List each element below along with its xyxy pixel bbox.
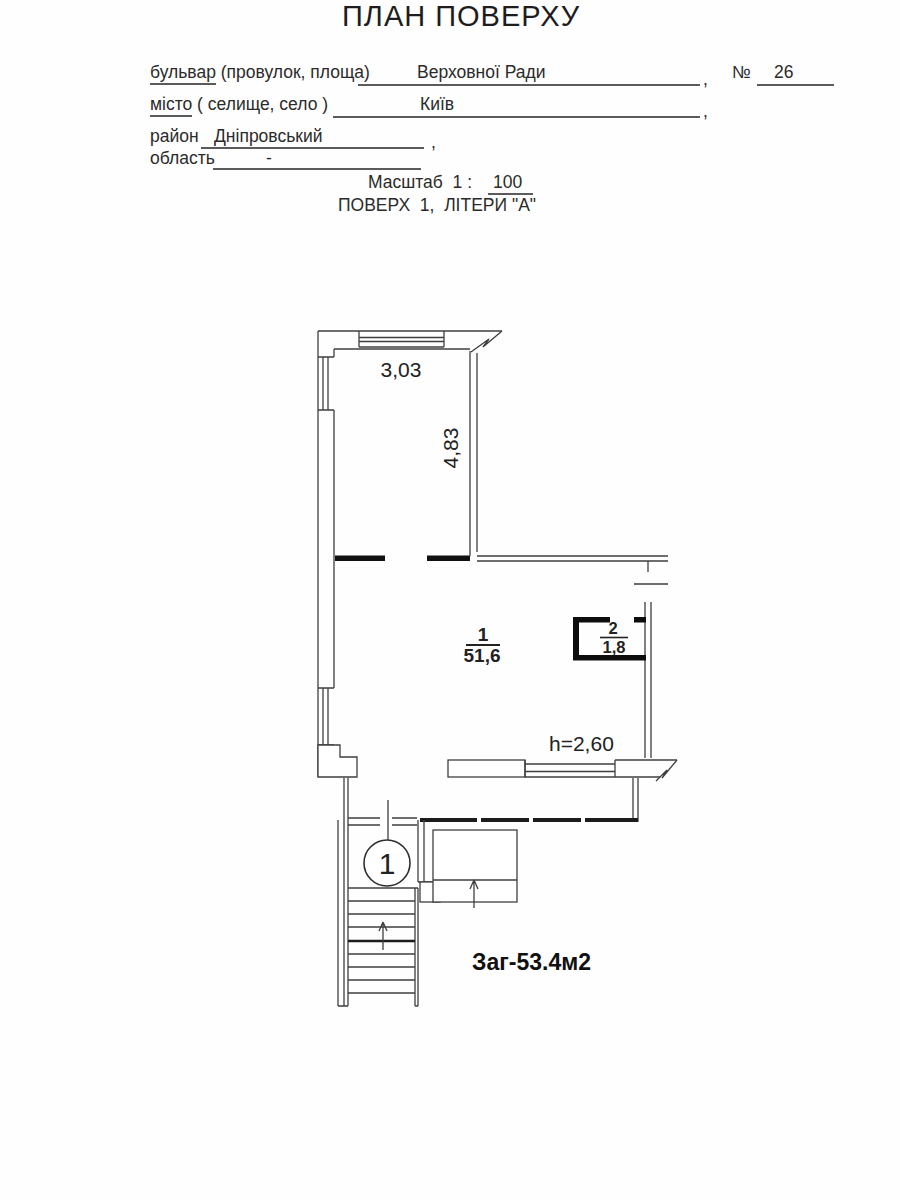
door-opening-bottom [448,760,525,777]
partition-wall-horizontal [335,556,470,562]
porch [433,830,517,908]
floor-plan-drawing: 3,03 4,83 1 51,6 2 1,8 h=2,60 1 Заг-53.4… [0,0,900,1200]
wall-break-top-right [471,331,502,352]
room2-number: 2 [608,619,617,637]
dimension-height-label: 4,83 [439,428,462,469]
total-area-label: Заг-53.4м2 [472,949,591,975]
porch-right-edge [633,778,638,822]
wall-pier-bottom-left [318,745,357,777]
window-top [359,331,444,347]
interior-wall-vertical [470,351,477,556]
wall-break-bottom-right [656,760,677,781]
floor-plan-document: ПЛАН ПОВЕРХУ бульвар (провулок, площа) В… [0,0,900,1200]
partition-right-thin [477,556,668,584]
bottom-wall [525,760,677,781]
room2-area: 1,8 [603,638,626,656]
window-left-upper [318,357,334,410]
room1-number: 1 [478,624,489,645]
right-wall [645,602,651,758]
left-wall [318,331,334,777]
entrance-number-label: 1 [379,847,396,880]
window-left-lower [318,688,334,745]
ceiling-height-label: h=2,60 [549,732,614,755]
staircase [338,778,418,1006]
room1-area: 51,6 [464,645,501,666]
dimension-width-label: 3,03 [381,358,422,381]
stair-up-arrow [379,922,387,950]
window-bottom [525,760,615,777]
